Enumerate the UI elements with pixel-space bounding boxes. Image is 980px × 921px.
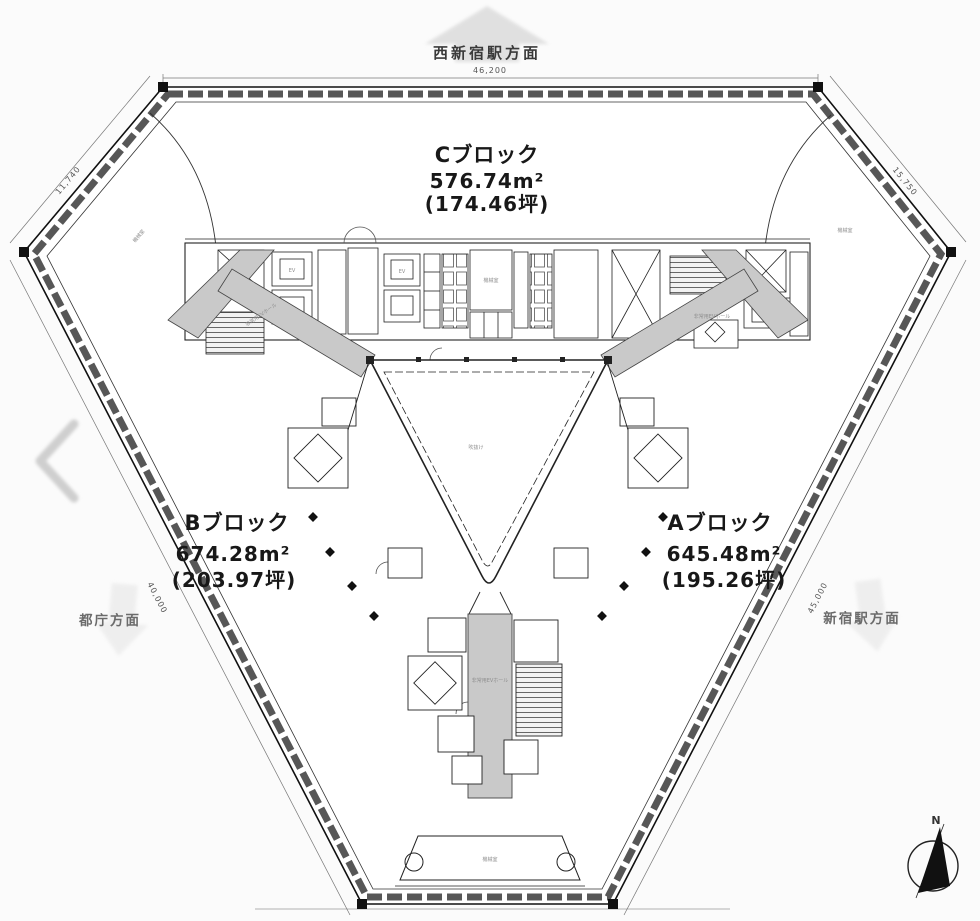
atrium-label: 吹抜け (468, 444, 483, 451)
direction-top-label: 西新宿駅方面 (433, 44, 541, 62)
dim-lower-left: 40,000 (145, 581, 169, 615)
block-b-tsubo: (203.97坪) (172, 568, 296, 592)
compass-n: N (931, 814, 940, 827)
compass-icon: N (908, 814, 958, 898)
chevron-left-icon (40, 424, 74, 498)
ev-label: EV (399, 269, 406, 275)
emergency-ev-label: 非常用EVホール (472, 677, 509, 684)
block-a-m2: 645.48m² (667, 542, 782, 566)
machine-room-label: 機械室 (482, 856, 497, 863)
floor-plan-page: 46,200 19,358 11,740 15,750 40,000 45,00… (0, 0, 980, 921)
block-c-name: Cブロック (435, 143, 539, 167)
machine-room-label: 機械室 (837, 227, 852, 234)
block-b-label: Bブロック 674.28m² (203.97坪) (172, 511, 296, 592)
block-c-label: Cブロック 576.74m² (174.46坪) (425, 143, 549, 216)
direction-left-label: 都庁方面 (78, 612, 141, 629)
block-c-m2: 576.74m² (430, 169, 545, 193)
ev-label: EV (289, 268, 296, 274)
block-b-m2: 674.28m² (176, 542, 291, 566)
dim-top: 46,200 (473, 66, 507, 75)
direction-right-label: 新宿駅方面 (823, 610, 901, 627)
block-a-label: Aブロック 645.48m² (195.26坪) (662, 511, 786, 592)
floor-plan-drawing: 46,200 19,358 11,740 15,750 40,000 45,00… (0, 0, 980, 921)
block-a-name: Aブロック (667, 511, 772, 535)
dim-lower-right: 45,000 (806, 581, 830, 615)
block-a-tsubo: (195.26坪) (662, 568, 786, 592)
block-b-name: Bブロック (184, 511, 289, 535)
block-c-tsubo: (174.46坪) (425, 192, 549, 216)
machine-room-label: 機械室 (483, 277, 498, 284)
emergency-ev-label: 非常用EVホール (694, 313, 731, 320)
stair-bottom (516, 664, 562, 736)
